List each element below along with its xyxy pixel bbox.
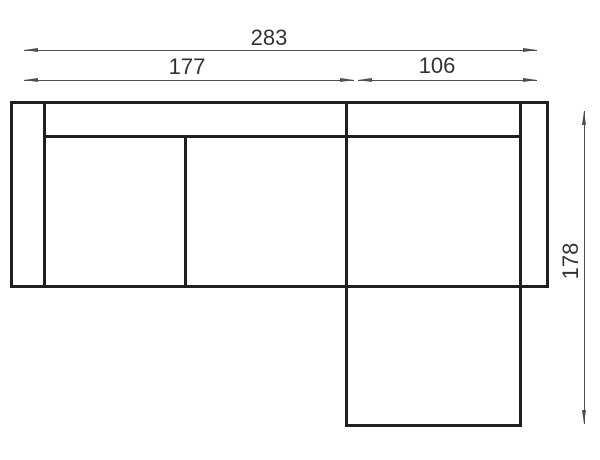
dimension-line-depth [584,111,585,424]
dimension-label-total-width: 283 [251,27,288,49]
left-armrest-line [43,101,46,288]
dimension-label-left-section: 177 [169,56,206,78]
arrowhead-right-icon [523,48,537,52]
backrest-line [43,135,522,138]
arrowhead-up-icon [582,111,586,125]
right-armrest-line [519,101,522,427]
arrowhead-left-icon [358,78,372,82]
dimension-label-depth: 178 [560,243,582,280]
arrowhead-right-icon [523,78,537,82]
sofa-technical-drawing: 283 177 106 178 [0,0,600,460]
arrowhead-left-icon [24,48,38,52]
dimension-line-left-section [24,80,354,81]
dimension-line-total-width [24,50,537,51]
dimension-label-chaise-section: 106 [419,55,456,77]
arrowhead-right-icon [340,78,354,82]
chaise-divider-line [345,101,348,427]
seat-divider-line [184,135,187,288]
arrowhead-down-icon [582,410,586,424]
dimension-line-chaise-section [358,80,537,81]
arrowhead-left-icon [24,78,38,82]
sofa-body-outline [10,101,549,288]
chaise-bottom-line [345,424,522,427]
